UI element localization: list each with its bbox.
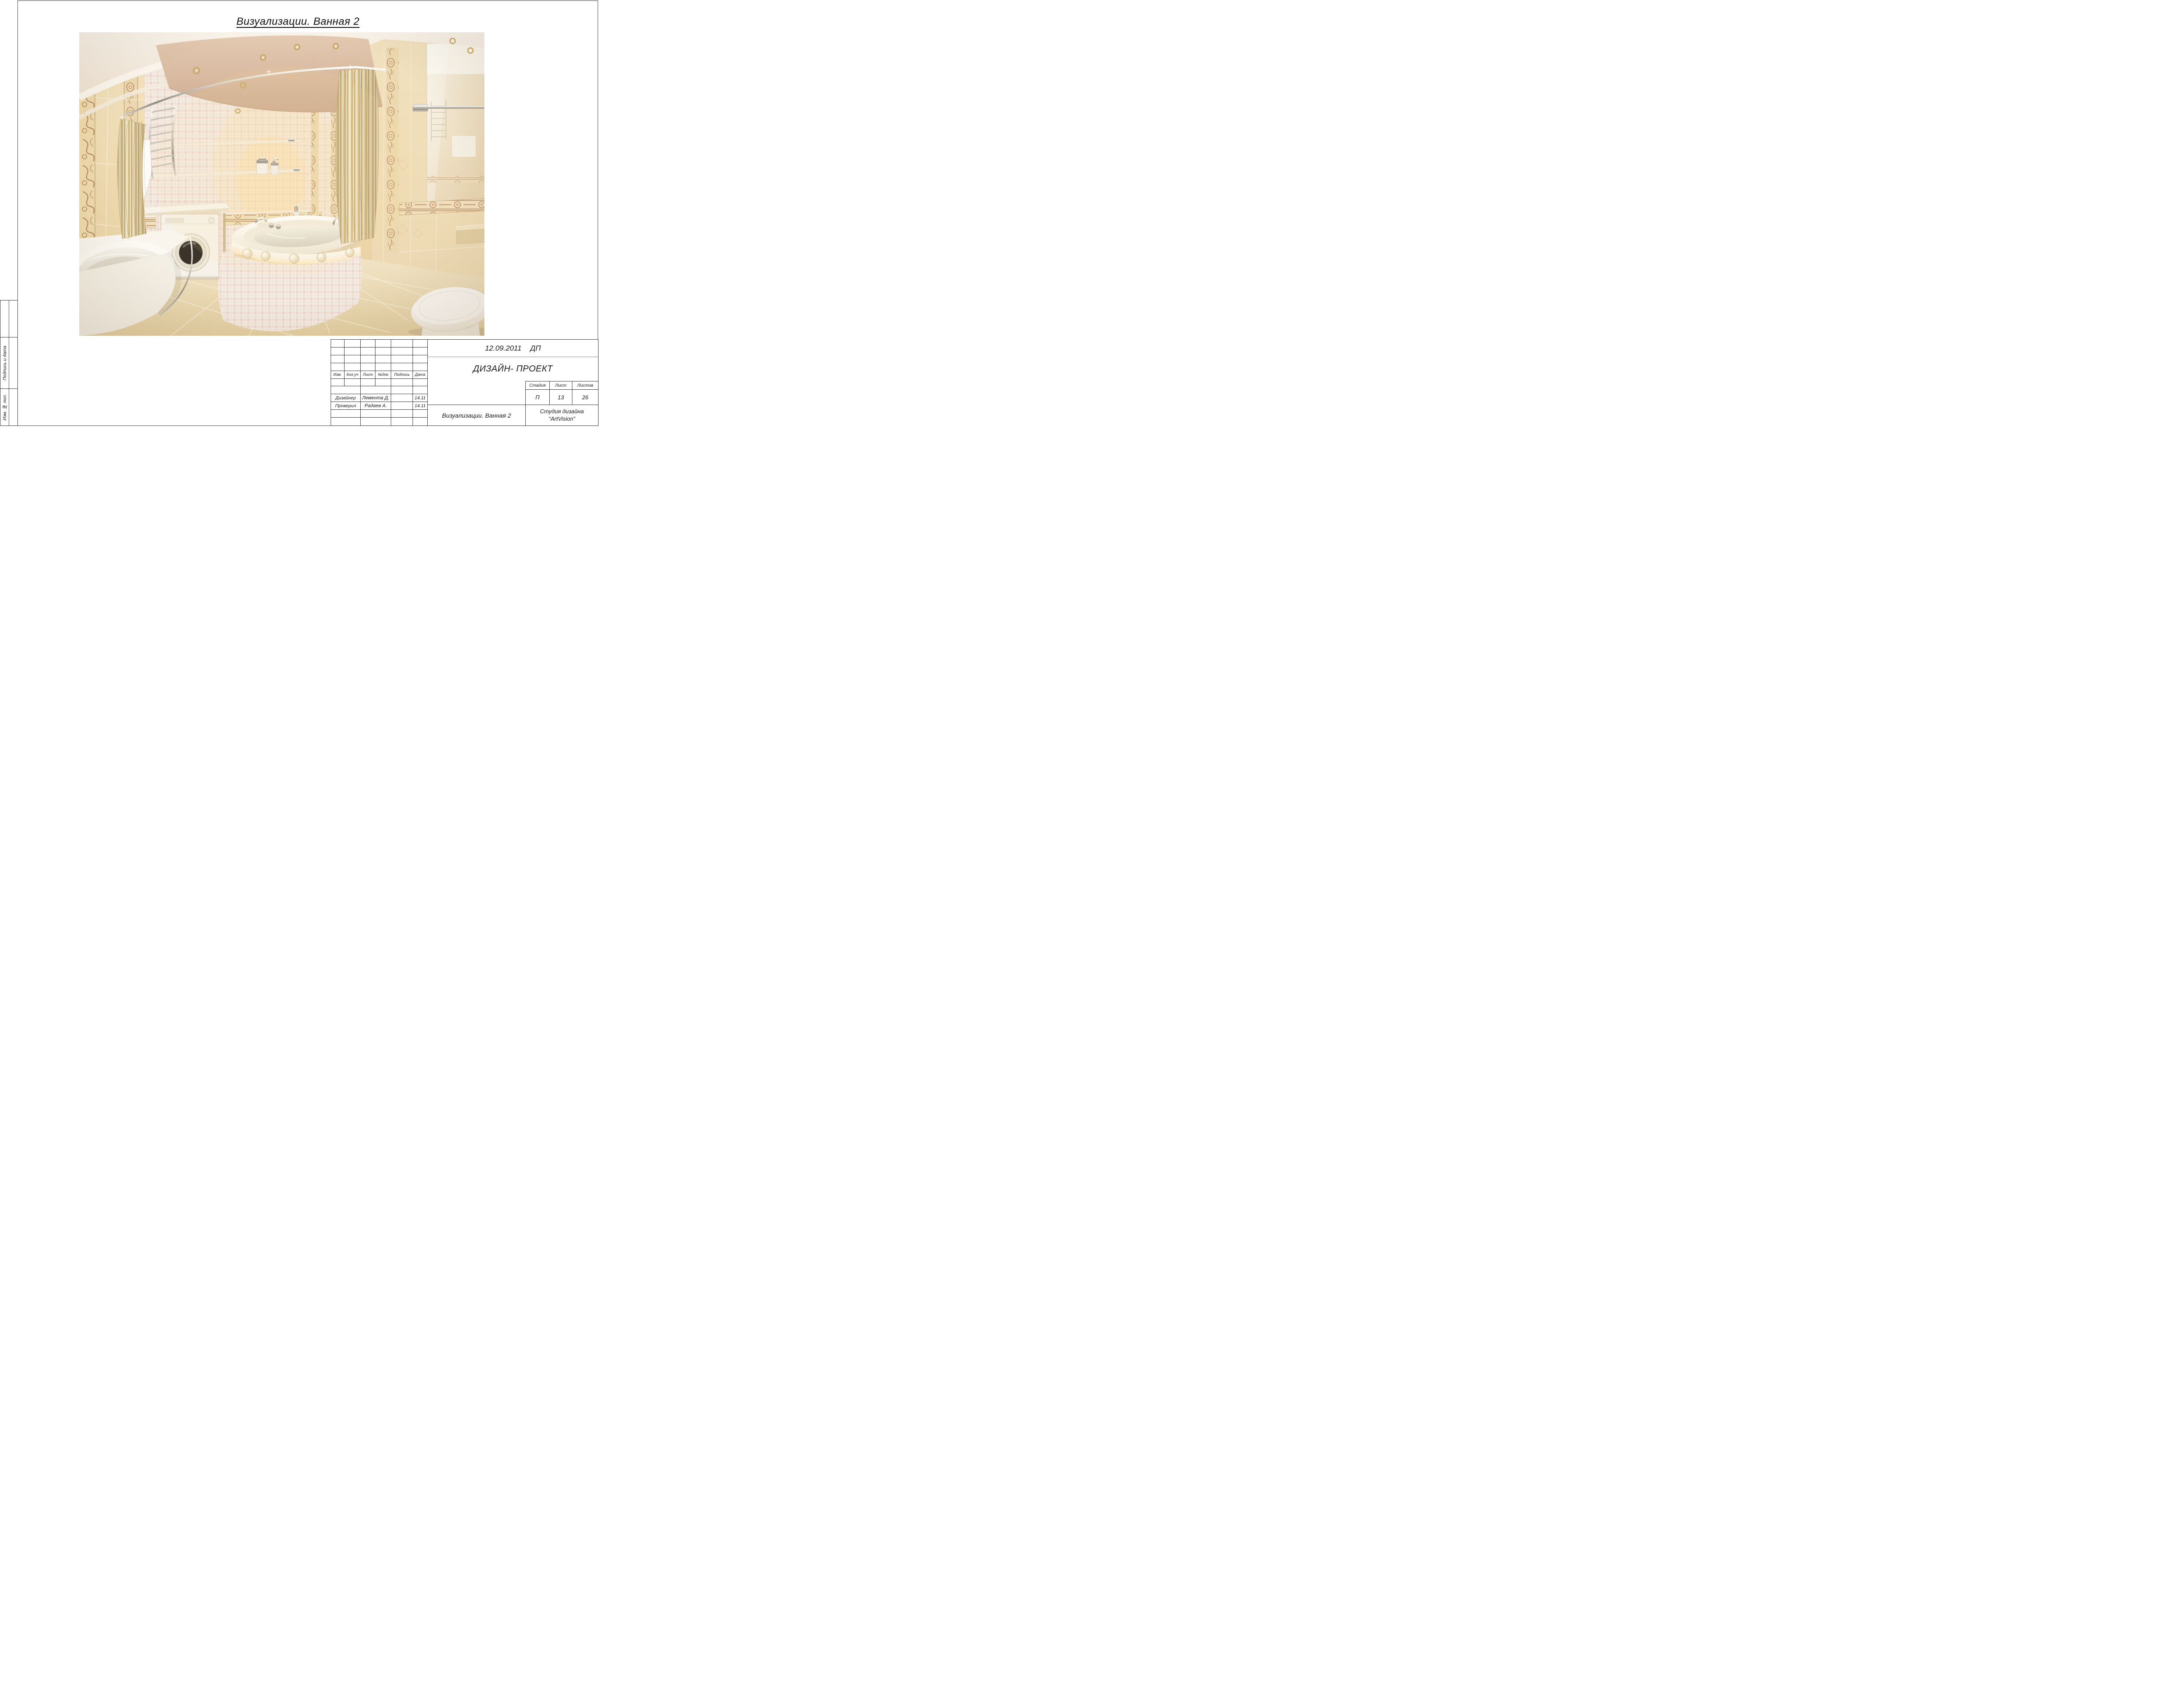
column-header: №док [375,371,391,379]
project-type: ДИЗАЙН- ПРОЕКТ [428,357,598,381]
stage-row: Стадия Лист Листов П 13 26 [428,381,598,405]
column-header: Изм. [331,371,345,379]
margin-box-blank [0,300,17,338]
light-vignette [79,32,484,336]
role-cell: Проверил [331,402,361,410]
bathroom-visualization [79,32,484,336]
stage-table: Стадия Лист Листов П 13 26 [525,381,598,405]
signature-cell [391,402,413,410]
name-cell: Радаев А. [361,402,391,410]
sheet-value: 13 [550,390,572,405]
caption-spacer [428,381,525,405]
signature-date-label: Подпись и дата [2,346,7,380]
page-title: Визуализации. Ванная 2 [145,16,450,28]
name-cell: Лемента Д. [361,394,391,402]
margin-box-signature-date: Подпись и дата [0,338,17,389]
sheets-total-header: Листов [572,381,598,390]
document-code-row: 12.09.2011 ДП [428,340,598,357]
column-header: Подпись [391,371,413,379]
margin-label-cell: Подпись и дата [0,338,9,388]
margin-label-cell: Изм. № пол. [0,389,9,425]
caption-row: Визуализации. Ванная 2 Студия дизайна “A… [428,405,598,425]
organization-brand: “ArtVision” [549,415,575,423]
column-header: Лист [361,371,375,379]
sheets-total-value: 26 [572,390,598,405]
role-cell: Дизайнер [331,394,361,402]
stage-value: П [526,390,550,405]
date-cell: 14.11 [413,402,427,410]
title-block-right: 12.09.2011 ДП ДИЗАЙН- ПРОЕКТ Стадия Лист… [428,340,598,425]
margin-tables: Подпись и дата Изм. № пол. [0,300,18,426]
sheet-caption: Визуализации. Ванная 2 [428,405,525,425]
change-number-label: Изм. № пол. [2,394,7,420]
margin-label-cell [0,300,9,337]
signature-cell [391,394,413,402]
column-header: Дата [413,371,427,379]
revision-table: Изм. Кол.уч Лист №док Подпись Дата Дизай… [331,340,428,425]
document-code: ДП [530,344,541,353]
title-block: Изм. Кол.уч Лист №док Подпись Дата Дизай… [331,339,599,426]
organization-cell: Студия дизайна “ArtVision” [525,405,598,425]
stage-header: Стадия [526,381,550,390]
column-header: Кол.уч [345,371,361,379]
drawing-sheet: Визуализации. Ванная 2 [0,0,599,427]
organization-name: Студия дизайна [540,408,584,415]
date-cell: 14.11 [413,394,427,402]
sheet-header: Лист [550,381,572,390]
document-date: 12.09.2011 [485,344,521,353]
margin-box-change-number: Изм. № пол. [0,389,17,425]
